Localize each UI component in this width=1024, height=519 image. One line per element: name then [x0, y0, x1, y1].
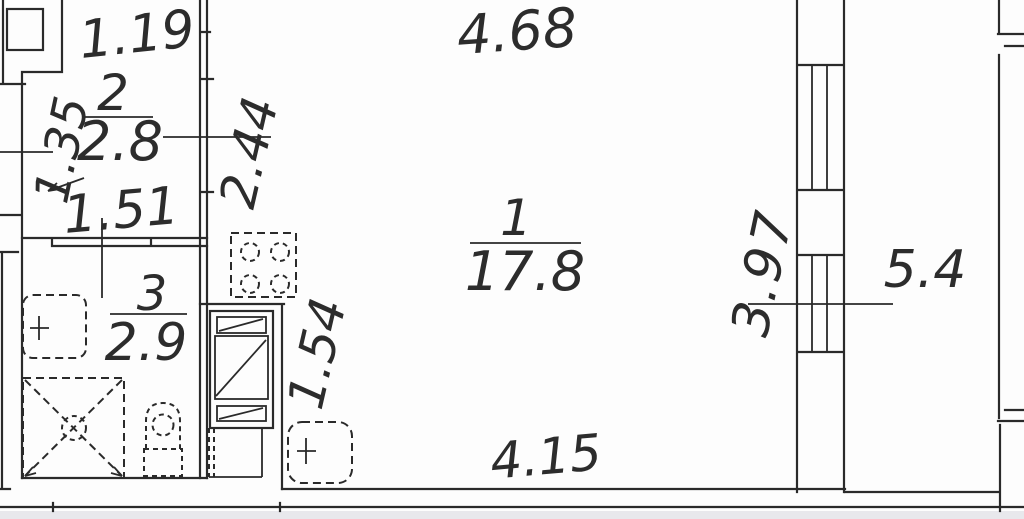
sink-icon: [23, 295, 86, 358]
dim-hall-top-label: 1.19: [76, 0, 197, 71]
washing-machine-icon: [288, 422, 352, 483]
dim-balcony-glazing-label: 3.97: [720, 204, 805, 341]
bottom-strip: [0, 511, 1024, 519]
floorplan-drawing: 1.19 2 2.8 1.35 1.51 2.44 4.68 1 17.8 4.…: [0, 0, 1024, 519]
floorplan-canvas: 1.19 2 2.8 1.35 1.51 2.44 4.68 1 17.8 4.…: [0, 0, 1024, 519]
stove-icon: [231, 233, 296, 297]
vent-shaft-icon: [210, 311, 273, 428]
toilet-icon: [144, 403, 182, 476]
room-3-area: 2.9: [105, 313, 188, 373]
dim-living-bottom-label: 4.15: [488, 423, 604, 490]
room-1-area: 17.8: [465, 240, 585, 303]
window-mullions: [812, 65, 827, 352]
balcony-area-label: 5.4: [884, 240, 967, 300]
dim-hall-right-label: 2.44: [208, 92, 290, 214]
shower-icon: [23, 378, 124, 478]
dim-living-top-label: 4.68: [455, 0, 579, 67]
duct-shaft: [7, 9, 43, 50]
dim-hall-bottom-label: 1.51: [61, 176, 182, 246]
dim-niche-label: 1.54: [276, 293, 358, 415]
kitchen-cabinet-icon: [209, 428, 262, 477]
room-1-number: 1: [500, 189, 532, 247]
